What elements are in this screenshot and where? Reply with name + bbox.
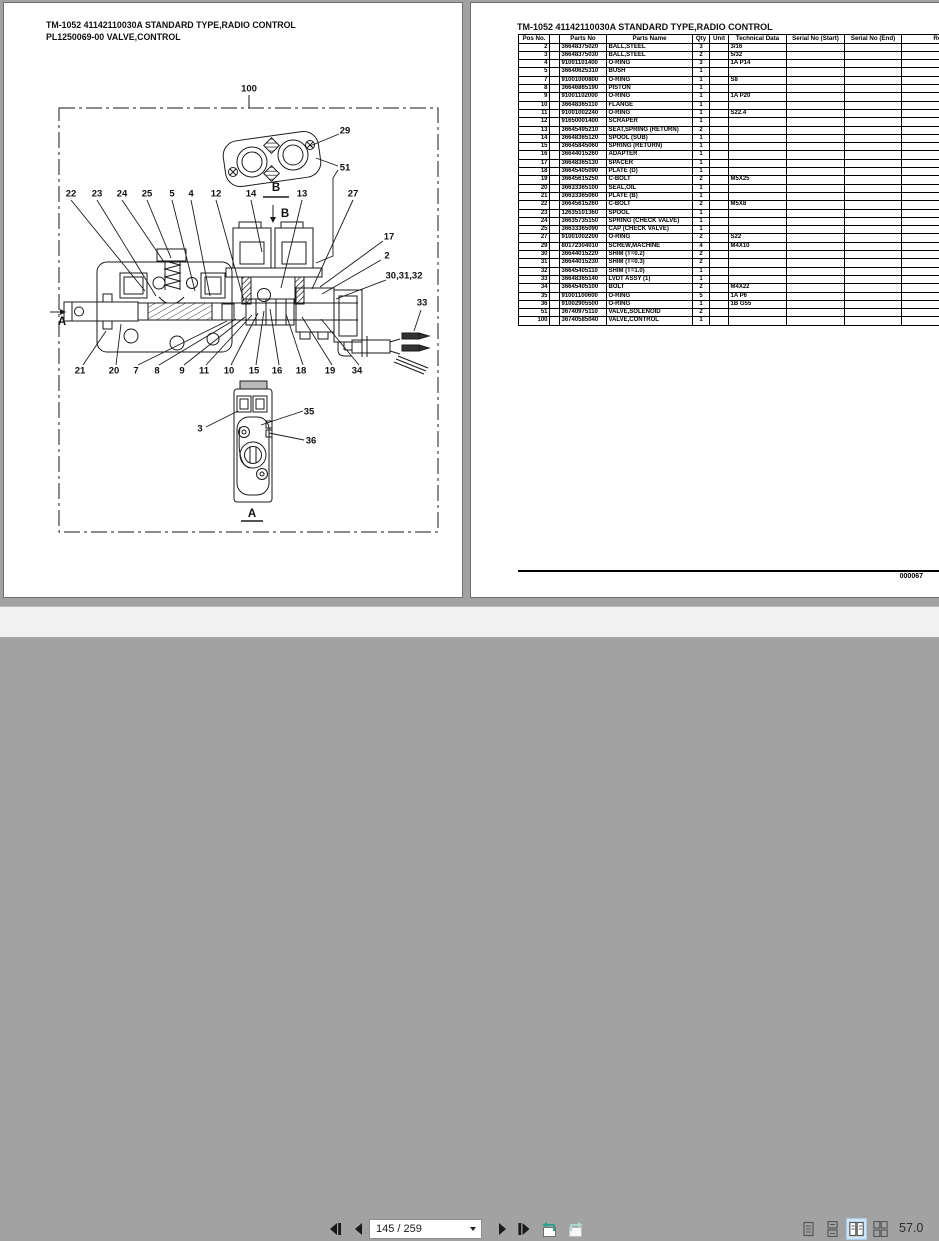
- table-row: 2136633365060PLATE (B)1: [519, 192, 939, 200]
- table-cell: 1A P6: [729, 292, 787, 300]
- table-cell: [710, 151, 729, 159]
- right-page-title: TM-1052 41142110030A STANDARD TYPE,RADIO…: [517, 22, 773, 34]
- table-cell: 2: [693, 309, 710, 317]
- table-cell: [729, 209, 787, 217]
- table-cell: [902, 209, 939, 217]
- table-cell: [902, 292, 939, 300]
- table-cell: [902, 101, 939, 109]
- table-cell: 1: [693, 118, 710, 126]
- table-cell: [902, 60, 939, 68]
- table-cell: [902, 143, 939, 151]
- table-row: 3436645405100BOLT2M4X22: [519, 284, 939, 292]
- table-cell: 1: [693, 76, 710, 84]
- table-cell: 1: [693, 101, 710, 109]
- table-cell: [550, 201, 560, 209]
- table-row: 1291650001400SCRAPER1: [519, 118, 939, 126]
- table-cell: [550, 151, 560, 159]
- table-row: 1036648365110FLANGE1: [519, 101, 939, 109]
- table-row: 991001102000O-RING11A P20: [519, 93, 939, 101]
- parts-table-header-cell: Qty: [693, 35, 710, 44]
- table-cell: [787, 184, 845, 192]
- table-cell: 1: [693, 168, 710, 176]
- table-cell: [902, 317, 939, 325]
- table-cell: [902, 267, 939, 275]
- table-cell: [729, 217, 787, 225]
- table-cell: O-RING: [607, 60, 693, 68]
- table-cell: SHIM (T=1.0): [607, 267, 693, 275]
- table-cell: [729, 184, 787, 192]
- table-cell: M5X25: [729, 176, 787, 184]
- table-cell: 12635101360: [560, 209, 607, 217]
- table-cell: [550, 251, 560, 259]
- table-cell: [845, 300, 902, 308]
- table-cell: [729, 126, 787, 134]
- table-cell: [787, 109, 845, 117]
- table-cell: [845, 143, 902, 151]
- table-cell: 36645405100: [560, 284, 607, 292]
- table-cell: [710, 126, 729, 134]
- table-cell: 91001100600: [560, 292, 607, 300]
- table-cell: [902, 242, 939, 250]
- table-cell: [729, 267, 787, 275]
- table-cell: [902, 192, 939, 200]
- table-cell: [902, 259, 939, 267]
- table-row: 3136644015230SHIM (T=0.3)2: [519, 259, 939, 267]
- single-page-view-button[interactable]: [798, 1218, 819, 1240]
- table-cell: [550, 109, 560, 117]
- table-cell: [550, 93, 560, 101]
- table-cell: 51: [519, 309, 550, 317]
- table-cell: [902, 168, 939, 176]
- table-cell: SPRING (CHECK VALVE): [607, 217, 693, 225]
- table-cell: [550, 317, 560, 325]
- table-cell: S22.4: [729, 109, 787, 117]
- table-cell: 100: [519, 317, 550, 325]
- table-cell: 15: [519, 143, 550, 151]
- table-cell: [787, 300, 845, 308]
- table-cell: [902, 118, 939, 126]
- table-cell: 3: [519, 51, 550, 59]
- table-cell: [902, 226, 939, 234]
- table-cell: [845, 201, 902, 209]
- table-cell: SCREW,MACHINE: [607, 242, 693, 250]
- table-cell: 1: [693, 85, 710, 93]
- table-cell: 2: [693, 201, 710, 209]
- table-cell: 1: [693, 317, 710, 325]
- table-cell: [550, 292, 560, 300]
- table-cell: 30: [519, 251, 550, 259]
- table-cell: [902, 309, 939, 317]
- table-cell: [787, 168, 845, 176]
- table-cell: 18: [519, 168, 550, 176]
- table-cell: 22: [519, 201, 550, 209]
- table-cell: BALL,STEEL: [607, 43, 693, 51]
- table-cell: 2: [519, 43, 550, 51]
- table-cell: [710, 226, 729, 234]
- table-cell: LVDT ASSY (1): [607, 275, 693, 283]
- table-cell: [550, 242, 560, 250]
- parts-table-header-cell: Parts No: [560, 35, 607, 44]
- table-cell: BOLT: [607, 284, 693, 292]
- zoom-level-label[interactable]: 57.0: [899, 1221, 923, 1235]
- table-cell: [845, 51, 902, 59]
- table-cell: 11: [519, 109, 550, 117]
- table-cell: 36644015260: [560, 151, 607, 159]
- left-page-title-line2: PL1250069-00 VALVE,CONTROL: [46, 32, 296, 44]
- table-cell: [902, 201, 939, 209]
- table-cell: 3/16: [729, 43, 787, 51]
- table-cell: 33: [519, 275, 550, 283]
- table-cell: [845, 85, 902, 93]
- table-cell: O-RING: [607, 93, 693, 101]
- table-cell: 1A P14: [729, 60, 787, 68]
- table-cell: [845, 126, 902, 134]
- table-cell: VALVE,CONTROL: [607, 317, 693, 325]
- table-cell: [845, 118, 902, 126]
- table-cell: [710, 143, 729, 151]
- facing-pages-view-button[interactable]: [846, 1218, 867, 1240]
- table-row: 3236645405110SHIM (T=1.0)1: [519, 267, 939, 275]
- table-cell: 36645405110: [560, 267, 607, 275]
- table-cell: O-RING: [607, 292, 693, 300]
- table-row: 1836645405090PLATE (D)1: [519, 168, 939, 176]
- table-row: 3591001100600O-RING51A P6: [519, 292, 939, 300]
- table-cell: [710, 309, 729, 317]
- table-cell: 91650001400: [560, 118, 607, 126]
- table-cell: 27: [519, 234, 550, 242]
- table-cell: 36644015220: [560, 251, 607, 259]
- table-cell: 1: [693, 184, 710, 192]
- table-cell: [845, 76, 902, 84]
- table-cell: 2: [693, 259, 710, 267]
- table-cell: [710, 259, 729, 267]
- table-cell: [787, 292, 845, 300]
- table-cell: [787, 118, 845, 126]
- table-cell: 2: [693, 176, 710, 184]
- previous-page-icon: [352, 1222, 365, 1236]
- previous-view-icon: [540, 1221, 558, 1238]
- table-cell: [710, 234, 729, 242]
- table-cell: 24: [519, 217, 550, 225]
- left-page-title: TM-1052 41142110030A STANDARD TYPE,RADIO…: [46, 20, 296, 43]
- table-cell: CAP (CHECK VALVE): [607, 226, 693, 234]
- table-cell: [550, 68, 560, 76]
- facing-continuous-view-button[interactable]: [870, 1218, 891, 1240]
- table-cell: [902, 43, 939, 51]
- table-cell: SPOOL (SUB): [607, 134, 693, 142]
- table-cell: 91001000800: [560, 76, 607, 84]
- table-cell: [710, 217, 729, 225]
- table-cell: [845, 93, 902, 101]
- table-cell: [550, 76, 560, 84]
- table-cell: O-RING: [607, 234, 693, 242]
- table-cell: PLATE (D): [607, 168, 693, 176]
- table-cell: 36648365130: [560, 159, 607, 167]
- table-row: 1336645495210SEAT,SPRING (RETURN)2: [519, 126, 939, 134]
- page-number-box[interactable]: [369, 1219, 482, 1239]
- table-cell: [550, 143, 560, 151]
- table-cell: [550, 192, 560, 200]
- table-cell: [902, 68, 939, 76]
- table-cell: 1: [693, 267, 710, 275]
- parts-table-header-cell: Serial No (Start): [787, 35, 845, 44]
- parts-table-header-cell: Serial No (End): [845, 35, 902, 44]
- table-row: 2536633365090CAP (CHECK VALVE)1: [519, 226, 939, 234]
- table-cell: [902, 275, 939, 283]
- table-cell: 36640625310: [560, 68, 607, 76]
- next-page-button[interactable]: [495, 1217, 509, 1241]
- table-row: 2236645615260C-BOLT2M5X8: [519, 201, 939, 209]
- table-cell: [710, 168, 729, 176]
- table-cell: [845, 109, 902, 117]
- table-cell: [710, 251, 729, 259]
- table-cell: M4X22: [729, 284, 787, 292]
- table-cell: [902, 126, 939, 134]
- table-cell: [845, 68, 902, 76]
- next-page-icon: [496, 1222, 509, 1236]
- parts-table-header-cell: Remarks: [902, 35, 939, 44]
- table-cell: [787, 60, 845, 68]
- table-cell: [710, 209, 729, 217]
- table-cell: 1: [693, 217, 710, 225]
- table-row: 1736648365130SPACER1: [519, 159, 939, 167]
- table-cell: [550, 118, 560, 126]
- table-cell: 1: [693, 143, 710, 151]
- table-cell: [787, 259, 845, 267]
- table-row: 336648375030BALL,STEEL25/32: [519, 51, 939, 59]
- table-cell: 1A P20: [729, 93, 787, 101]
- table-cell: [902, 134, 939, 142]
- table-cell: [902, 217, 939, 225]
- table-cell: ADAPTER: [607, 151, 693, 159]
- table-cell: [787, 284, 845, 292]
- table-cell: [550, 234, 560, 242]
- table-cell: SHIM (T=0.2): [607, 251, 693, 259]
- table-cell: [710, 60, 729, 68]
- pdf-viewer: { "viewer": { "colors": { "canvas": "#a2…: [0, 0, 939, 637]
- table-cell: [845, 226, 902, 234]
- table-cell: 91001002240: [560, 109, 607, 117]
- table-cell: [710, 242, 729, 250]
- previous-view-button[interactable]: [539, 1217, 559, 1241]
- table-cell: 2: [693, 234, 710, 242]
- table-cell: [787, 143, 845, 151]
- table-cell: [550, 217, 560, 225]
- table-cell: [550, 159, 560, 167]
- table-row: 236648375020BALL,STEEL33/16: [519, 43, 939, 51]
- continuous-view-button[interactable]: [822, 1218, 843, 1240]
- table-cell: 1: [693, 93, 710, 101]
- table-cell: SPOOL: [607, 209, 693, 217]
- table-row: 5136740975110VALVE,SOLENOID2: [519, 309, 939, 317]
- table-cell: 23: [519, 209, 550, 217]
- next-view-button[interactable]: [566, 1217, 586, 1241]
- parts-table-header-cell: [550, 35, 560, 44]
- table-cell: [787, 234, 845, 242]
- table-cell: VALVE,SOLENOID: [607, 309, 693, 317]
- table-cell: [845, 159, 902, 167]
- table-cell: [729, 85, 787, 93]
- table-cell: [787, 209, 845, 217]
- table-cell: 4: [519, 60, 550, 68]
- page-dropdown-caret-icon[interactable]: [470, 1227, 476, 1231]
- page-number-input[interactable]: [370, 1221, 468, 1237]
- table-cell: 1: [693, 159, 710, 167]
- table-cell: 36645845060: [560, 143, 607, 151]
- table-cell: 13: [519, 126, 550, 134]
- table-cell: 1: [693, 300, 710, 308]
- table-cell: [845, 292, 902, 300]
- table-cell: [902, 159, 939, 167]
- table-cell: 2: [693, 51, 710, 59]
- table-cell: [729, 159, 787, 167]
- table-cell: C-BOLT: [607, 176, 693, 184]
- table-cell: SHIM (T=0.3): [607, 259, 693, 267]
- table-row: 2980172304010SCREW,MACHINE4M4X10: [519, 242, 939, 250]
- first-page-button[interactable]: [327, 1217, 344, 1241]
- table-cell: 1: [693, 192, 710, 200]
- table-cell: SEAL,OIL: [607, 184, 693, 192]
- table-cell: [845, 184, 902, 192]
- table-cell: FLANGE: [607, 101, 693, 109]
- table-cell: [550, 134, 560, 142]
- table-cell: 91001101400: [560, 60, 607, 68]
- table-cell: [902, 151, 939, 159]
- table-cell: [845, 101, 902, 109]
- table-cell: M4X10: [729, 242, 787, 250]
- table-cell: 36633365090: [560, 226, 607, 234]
- table-cell: 36646865190: [560, 85, 607, 93]
- table-cell: [710, 51, 729, 59]
- table-cell: [845, 259, 902, 267]
- table-cell: [787, 251, 845, 259]
- table-cell: 1: [693, 226, 710, 234]
- table-cell: [710, 317, 729, 325]
- table-cell: 2: [693, 284, 710, 292]
- table-cell: [845, 60, 902, 68]
- table-cell: [845, 251, 902, 259]
- table-cell: 1: [693, 109, 710, 117]
- table-cell: [710, 159, 729, 167]
- table-cell: [787, 51, 845, 59]
- table-cell: [550, 226, 560, 234]
- table-cell: [550, 126, 560, 134]
- table-row: 791001000800O-RING1S8: [519, 76, 939, 84]
- table-cell: [710, 76, 729, 84]
- table-cell: [845, 234, 902, 242]
- table-cell: [729, 143, 787, 151]
- right-document-page[interactable]: TM-1052 41142110030A STANDARD TYPE,RADIO…: [470, 2, 939, 598]
- table-cell: 36645495210: [560, 126, 607, 134]
- table-cell: [550, 43, 560, 51]
- table-cell: [845, 192, 902, 200]
- last-page-icon: [517, 1222, 532, 1236]
- table-cell: SPACER: [607, 159, 693, 167]
- table-cell: [710, 300, 729, 308]
- table-cell: 36645615250: [560, 176, 607, 184]
- table-cell: 2: [693, 251, 710, 259]
- table-cell: [787, 68, 845, 76]
- table-cell: [710, 184, 729, 192]
- table-cell: 5/32: [729, 51, 787, 59]
- table-cell: [550, 275, 560, 283]
- table-cell: 91002905500: [560, 300, 607, 308]
- table-cell: [729, 101, 787, 109]
- page-footer-number: 000067: [863, 573, 923, 580]
- table-cell: PLATE (B): [607, 192, 693, 200]
- table-cell: [902, 76, 939, 84]
- table-cell: [787, 43, 845, 51]
- parts-table-header-cell: Technical Data: [729, 35, 787, 44]
- table-cell: 20: [519, 184, 550, 192]
- parts-table-header-cell: Pos No.: [519, 35, 550, 44]
- table-row: 1191001002240O-RING1S22.4: [519, 109, 939, 117]
- first-page-icon: [328, 1222, 343, 1236]
- table-row: 10036740585040VALVE,CONTROL1: [519, 317, 939, 325]
- table-cell: [787, 176, 845, 184]
- table-cell: 91001102000: [560, 93, 607, 101]
- table-row: 3691002905500O-RING11B G55: [519, 300, 939, 308]
- table-cell: [550, 184, 560, 192]
- table-cell: [787, 134, 845, 142]
- left-document-page[interactable]: TM-1052 41142110030A STANDARD TYPE,RADIO…: [3, 2, 463, 598]
- table-cell: [710, 68, 729, 76]
- table-cell: [902, 93, 939, 101]
- table-cell: [787, 242, 845, 250]
- table-cell: [787, 76, 845, 84]
- table-row: 1536645845060SPRING (RETURN)1: [519, 143, 939, 151]
- parts-table-body: 236648375020BALL,STEEL33/16336648375030B…: [519, 43, 939, 325]
- table-cell: 1: [693, 209, 710, 217]
- table-cell: [845, 317, 902, 325]
- table-cell: PISTON: [607, 85, 693, 93]
- table-cell: [710, 284, 729, 292]
- table-cell: [787, 101, 845, 109]
- table-cell: 9: [519, 93, 550, 101]
- table-cell: 4: [693, 242, 710, 250]
- table-cell: [845, 217, 902, 225]
- table-row: 3336648365140LVDT ASSY (1)1: [519, 275, 939, 283]
- table-row: 2791001002200O-RING2S22: [519, 234, 939, 242]
- parts-table-header-cell: Parts Name: [607, 35, 693, 44]
- table-cell: 36645615260: [560, 201, 607, 209]
- table-cell: [550, 51, 560, 59]
- table-cell: 36644015230: [560, 259, 607, 267]
- table-cell: [729, 226, 787, 234]
- table-cell: 36648375020: [560, 43, 607, 51]
- table-row: 2436635735150SPRING (CHECK VALVE)1: [519, 217, 939, 225]
- table-cell: [729, 151, 787, 159]
- table-cell: 36633365060: [560, 192, 607, 200]
- table-cell: 3: [693, 60, 710, 68]
- table-cell: 1: [693, 134, 710, 142]
- table-cell: 16: [519, 151, 550, 159]
- table-cell: M5X8: [729, 201, 787, 209]
- table-cell: [845, 242, 902, 250]
- table-cell: 1: [693, 68, 710, 76]
- table-cell: 19: [519, 176, 550, 184]
- table-cell: 1: [693, 151, 710, 159]
- table-row: 1636644015260ADAPTER1: [519, 151, 939, 159]
- table-cell: [787, 151, 845, 159]
- table-cell: 91001002200: [560, 234, 607, 242]
- table-cell: [845, 284, 902, 292]
- last-page-button[interactable]: [516, 1217, 533, 1241]
- previous-page-button[interactable]: [351, 1217, 365, 1241]
- table-cell: [550, 259, 560, 267]
- table-cell: [710, 267, 729, 275]
- next-view-icon: [567, 1221, 585, 1238]
